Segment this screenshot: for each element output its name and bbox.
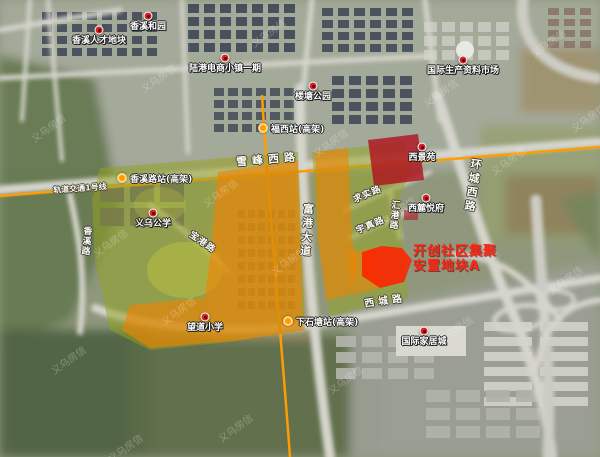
- annotation-line-1: 开创社区集聚: [413, 245, 497, 260]
- annotation-line-2: 安置地块A: [413, 260, 497, 275]
- market-round-building: [456, 41, 474, 59]
- satellite-basemap: [0, 0, 600, 457]
- satellite-map[interactable]: 香溪人才地块香溪和园陆港电商小镇一期国际生产资料市场楼塘公园义乌公学西景苑西麓悦…: [0, 0, 600, 457]
- anzhi-plot-annotation: 开创社区集聚 安置地块A: [413, 245, 497, 275]
- furniture-city-building: [396, 326, 466, 356]
- zone-dark-red-block: [368, 134, 424, 186]
